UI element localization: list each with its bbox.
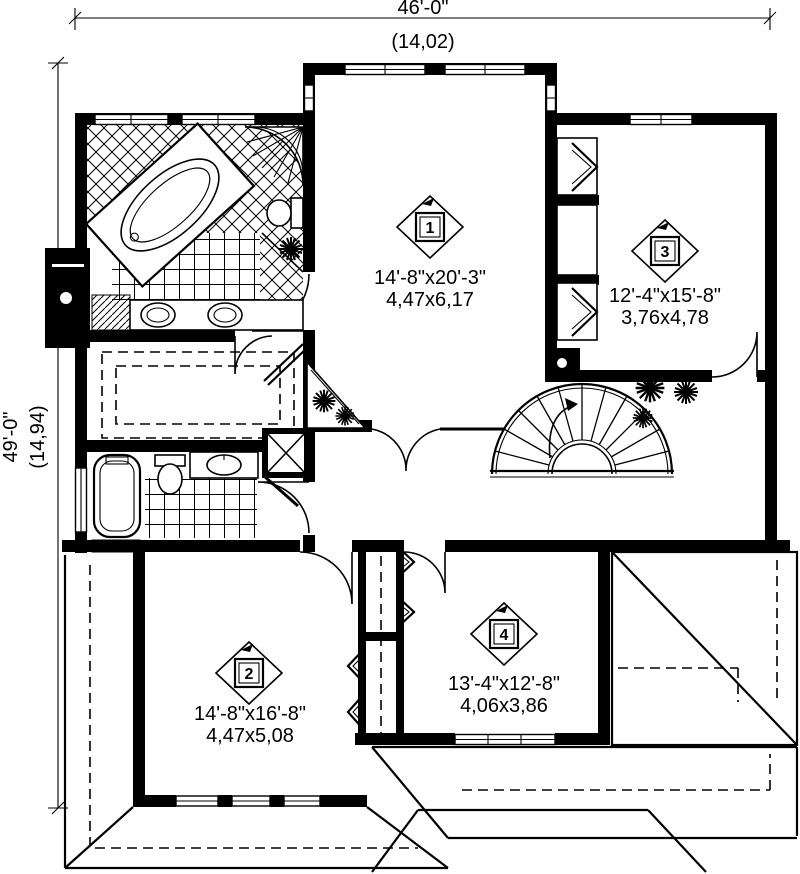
room-number: 4 [500, 627, 509, 644]
door [300, 552, 352, 604]
room-number: 2 [245, 666, 254, 683]
chimney [45, 248, 90, 348]
plant [633, 408, 653, 428]
shower-stall [262, 428, 310, 478]
room-label-2: 2 14'-8"x16'-8" 4,47x5,08 [194, 642, 306, 747]
shower-door [264, 476, 298, 506]
window-sill-hatch [92, 540, 140, 552]
room-label-1: 1 14'-8"x20'-3" 4,47x6,17 [374, 196, 486, 311]
plant [313, 390, 336, 413]
room-label-3: 3 12'-4"x15'-8" 3,76x4,78 [609, 220, 721, 329]
window [176, 796, 218, 806]
top-dimension-meters: (14,02) [391, 31, 454, 53]
floor-plan-drawing: 46'-0" (14,02) 49'-0" (14,94) [0, 0, 800, 874]
room-number: 1 [426, 220, 435, 237]
plant [335, 406, 354, 425]
room3-closets [557, 138, 597, 340]
left-dimension-meters: (14,94) [27, 405, 49, 468]
window [630, 115, 692, 125]
window [182, 115, 255, 125]
room-size-meters: 4,47x5,08 [206, 725, 294, 747]
room-label-4: 4 13'-4"x12'-8" 4,06x3,86 [448, 603, 560, 717]
window [547, 85, 556, 111]
floor-plan-page: 46'-0" (14,02) 49'-0" (14,94) [0, 0, 800, 874]
plant [279, 237, 303, 261]
angled-wall [264, 344, 307, 385]
window [76, 468, 87, 532]
back-to-back-closets [348, 547, 414, 745]
vanity-sink [190, 452, 258, 478]
door [258, 482, 309, 533]
plant [636, 374, 665, 403]
toilet [267, 198, 303, 228]
room-size-meters: 4,47x6,17 [386, 289, 474, 311]
vanity-double-sink [92, 295, 303, 330]
walk-in-closet [102, 352, 294, 438]
window [95, 115, 168, 125]
bathtub [94, 455, 140, 537]
room-size-feet: 12'-4"x15'-8" [609, 285, 721, 307]
plant [674, 380, 698, 404]
window [345, 65, 425, 75]
roof-outlines [65, 552, 797, 872]
top-dimension-feet: 46'-0" [398, 0, 449, 19]
room-size-feet: 13'-4"x12'-8" [448, 673, 560, 695]
stair-post [545, 348, 580, 378]
left-dimension-feet: 49'-0" [0, 412, 22, 463]
double-door [372, 429, 440, 471]
plant-shelf [307, 362, 365, 428]
room-size-feet: 14'-8"x16'-8" [194, 703, 306, 725]
vanity-bench-hatch [92, 295, 130, 330]
window [284, 796, 320, 806]
window [305, 85, 314, 111]
window [445, 65, 525, 75]
room-size-feet: 14'-8"x20'-3" [374, 267, 486, 289]
door [235, 336, 272, 374]
window [455, 735, 555, 745]
room-size-meters: 3,76x4,78 [621, 307, 709, 329]
window [232, 796, 270, 806]
room-size-meters: 4,06x3,86 [460, 695, 548, 717]
door [712, 332, 757, 377]
room-number: 3 [661, 244, 670, 261]
